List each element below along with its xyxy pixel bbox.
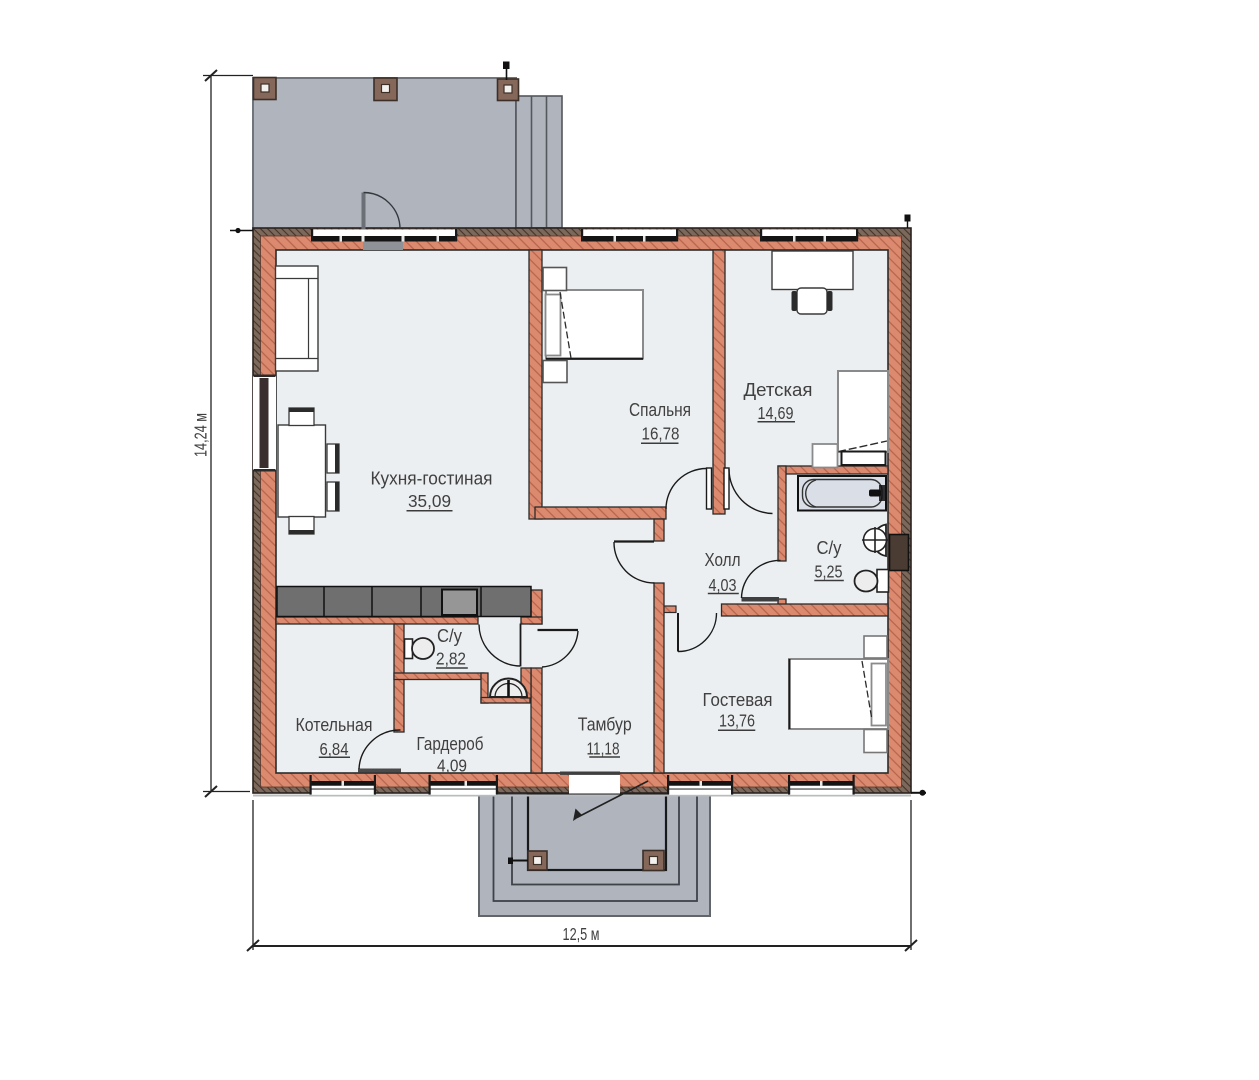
svg-text:Тамбур: Тамбур [578, 714, 632, 735]
svg-text:11,18: 11,18 [587, 739, 620, 759]
svg-text:Холл: Холл [705, 549, 741, 570]
svg-text:35,09: 35,09 [408, 491, 451, 511]
svg-text:4,09: 4,09 [437, 756, 467, 776]
svg-text:Детская: Детская [744, 379, 813, 400]
svg-text:С/у: С/у [437, 625, 463, 646]
svg-text:4,03: 4,03 [709, 575, 737, 595]
svg-text:13,76: 13,76 [719, 711, 755, 731]
svg-text:Гостевая: Гостевая [703, 689, 773, 710]
svg-text:5,25: 5,25 [815, 562, 843, 582]
svg-text:Кухня-гостиная: Кухня-гостиная [371, 468, 493, 489]
svg-text:14,69: 14,69 [758, 403, 794, 423]
svg-text:С/у: С/у [817, 537, 843, 558]
svg-text:12,5 м: 12,5 м [563, 924, 600, 944]
svg-text:6,84: 6,84 [320, 739, 349, 759]
svg-text:Спальня: Спальня [629, 399, 691, 420]
svg-text:Гардероб: Гардероб [417, 733, 484, 754]
svg-text:Котельная: Котельная [296, 714, 373, 735]
svg-text:16,78: 16,78 [642, 424, 680, 444]
svg-text:14,24 м: 14,24 м [191, 413, 211, 457]
svg-text:2,82: 2,82 [436, 649, 466, 669]
